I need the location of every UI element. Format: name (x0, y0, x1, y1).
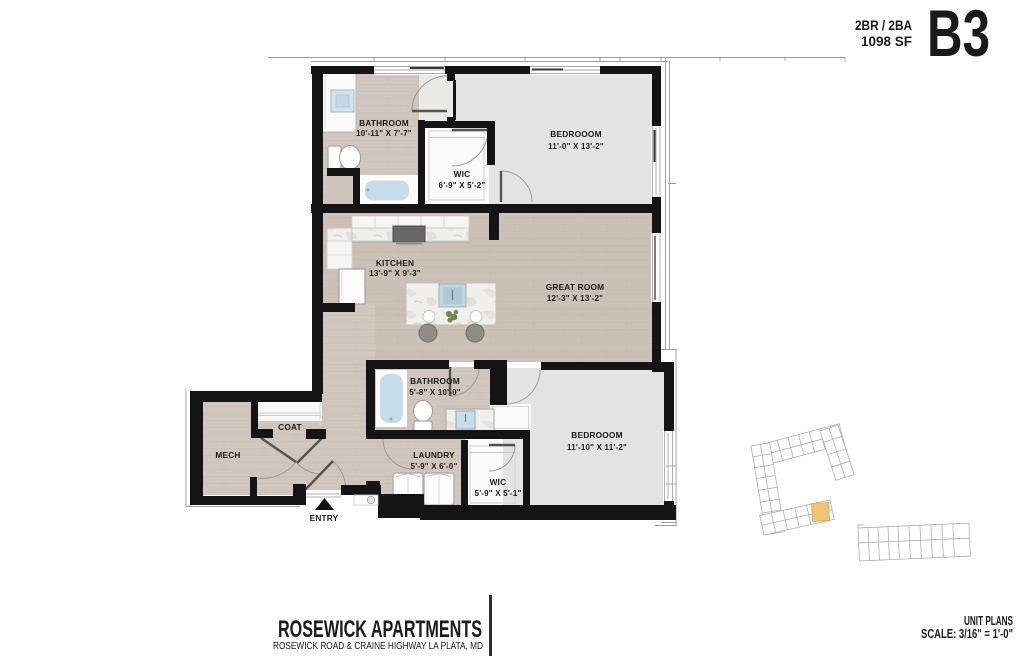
svg-text:10'-11" X 7'-7": 10'-11" X 7'-7" (356, 129, 412, 138)
svg-text:ROSEWICK APARTMENTS: ROSEWICK APARTMENTS (278, 616, 482, 643)
svg-text:11'-10" X 11'-2": 11'-10" X 11'-2" (567, 443, 627, 452)
svg-text:B3: B3 (927, 0, 990, 70)
svg-text:BEDROOOM: BEDROOOM (571, 430, 622, 440)
svg-text:1098 SF: 1098 SF (861, 33, 912, 49)
svg-text:5'-8" X 10'-0": 5'-8" X 10'-0" (409, 388, 461, 397)
svg-text:UNIT PLANS: UNIT PLANS (964, 614, 1013, 628)
svg-text:BEDROOOM: BEDROOOM (550, 129, 601, 139)
svg-text:MECH: MECH (215, 450, 240, 460)
svg-text:12'-3" X 13'-2": 12'-3" X 13'-2" (547, 294, 603, 303)
svg-text:COAT: COAT (278, 422, 302, 432)
svg-text:BATHROOM: BATHROOM (359, 118, 409, 128)
svg-text:BATHROOM: BATHROOM (410, 376, 460, 386)
svg-text:ENTRY: ENTRY (310, 513, 339, 523)
svg-text:GREAT ROOM: GREAT ROOM (546, 282, 605, 292)
svg-text:5'-9" X 5'-1": 5'-9" X 5'-1" (475, 489, 522, 498)
svg-text:KITCHEN: KITCHEN (376, 258, 414, 268)
svg-text:WIC: WIC (490, 477, 507, 487)
svg-text:2BR / 2BA: 2BR / 2BA (855, 17, 912, 33)
svg-text:SCALE: 3/16" = 1'-0": SCALE: 3/16" = 1'-0" (921, 627, 1013, 641)
svg-text:ROSEWICK ROAD & CRAINE HIGHWAY: ROSEWICK ROAD & CRAINE HIGHWAY LA PLATA,… (273, 640, 483, 652)
svg-text:5'-9" X 6'-0": 5'-9" X 6'-0" (411, 462, 458, 471)
svg-text:13'-9" X 9'-3": 13'-9" X 9'-3" (369, 269, 421, 278)
svg-text:WIC: WIC (454, 169, 471, 179)
svg-text:11'-0" X 13'-2": 11'-0" X 13'-2" (548, 142, 604, 151)
svg-text:LAUNDRY: LAUNDRY (413, 450, 455, 460)
svg-text:6'-9" X 5'-2": 6'-9" X 5'-2" (439, 181, 486, 190)
